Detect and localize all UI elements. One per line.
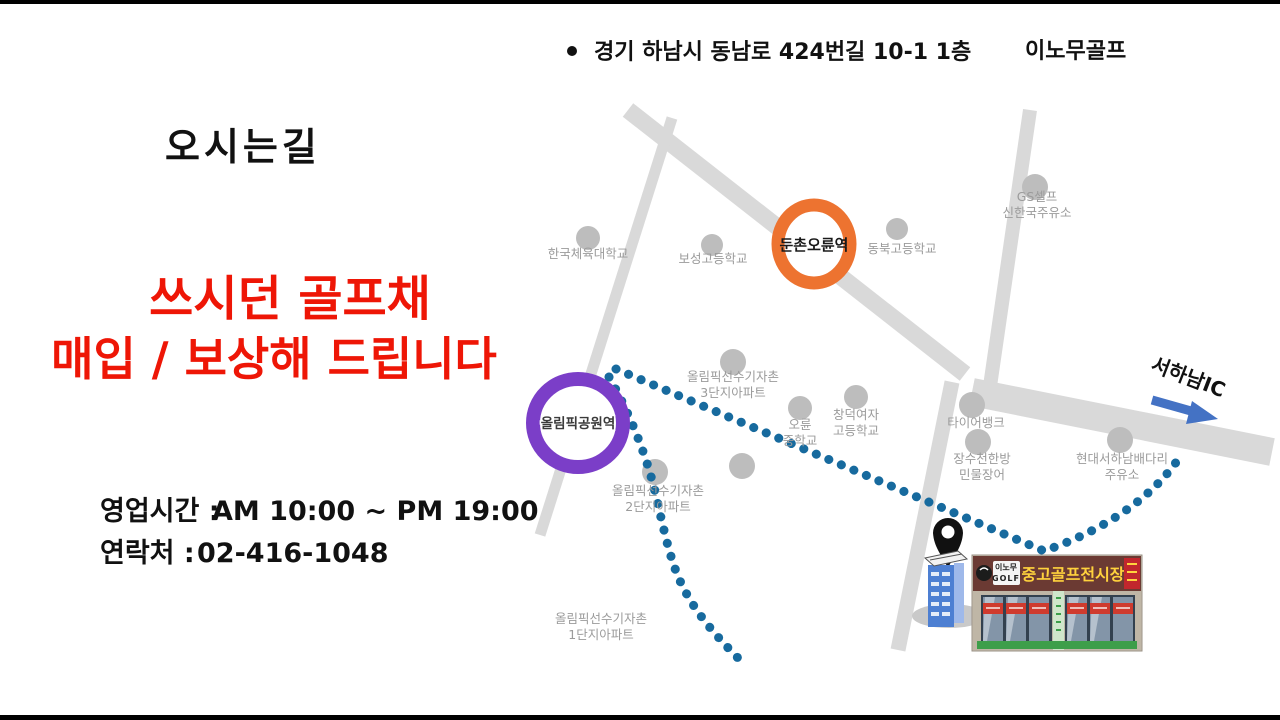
- map-label-apt3: 올림픽선수기자촌 3단지아파트: [687, 369, 779, 400]
- address-line: 경기 하남시 동남로 424번길 10-1 1층 이노무골프: [567, 39, 1126, 65]
- promo-line1: 쓰시던 골프채: [149, 271, 431, 327]
- map-label-changdeok-line1: 창덕여자: [833, 407, 880, 422]
- store-windows: [977, 591, 1137, 650]
- business-info: 영업시간 : AM 10:00 ~ PM 19:00 연락처 : 02-416-…: [100, 496, 539, 569]
- map-label-hyundai-gas: 현대서하남배다리 주유소: [1076, 451, 1168, 482]
- hours-label: 영업시간 :: [100, 496, 220, 527]
- hours-value: AM 10:00 ~ PM 19:00: [212, 496, 539, 527]
- map-label-hyundai-line1: 현대서하남배다리: [1076, 451, 1168, 466]
- map-label-gs-line1: GS셀프: [1017, 189, 1058, 204]
- poi-dot: [886, 218, 908, 240]
- map-pin-hole: [942, 526, 955, 539]
- map-label-apt3-line1: 올림픽선수기자촌: [687, 369, 779, 384]
- map-label-apt2-line1: 올림픽선수기자촌: [612, 483, 704, 498]
- station-label-dunchon-oryun: 둔촌오륜역: [779, 236, 848, 254]
- map-label-apt2-line2: 2단지아파트: [625, 499, 690, 514]
- map-label-apt1-line2: 1단지아파트: [568, 627, 633, 642]
- station-dunchon-oryun: 둔촌오륜역: [778, 205, 850, 283]
- seohanam-ic-label: 서하남IC: [1148, 352, 1229, 402]
- map-label-oryun-middle: 오륜 중학교: [783, 417, 818, 448]
- map-label-univ: 한국체육대학교: [548, 246, 629, 261]
- map-label-hyundai-line2: 주유소: [1105, 467, 1140, 482]
- road-right-upper: [988, 110, 1030, 400]
- map-label-apt1: 올림픽선수기자촌 1단지아파트: [555, 611, 647, 642]
- map-label-dongbuk: 동북고등학교: [867, 241, 936, 256]
- storefront-photo: 이노무 GOLF 중고골프전시장: [972, 555, 1142, 651]
- poi-dot: [1107, 427, 1133, 453]
- map-label-oryun-line1: 오륜: [788, 417, 811, 432]
- address-brand: 이노무골프: [1025, 39, 1126, 64]
- map-label-apt2: 올림픽선수기자촌 2단지아파트: [612, 483, 704, 514]
- promo-line2: 매입 / 보상해 드립니다: [51, 332, 497, 386]
- promo-text: 쓰시던 골프채 매입 / 보상해 드립니다: [51, 271, 497, 386]
- map-label-boseong: 보성고등학교: [678, 251, 747, 266]
- map-label-changdeok: 창덕여자 고등학교: [833, 407, 880, 438]
- map-label-apt1-line1: 올림픽선수기자촌: [555, 611, 647, 626]
- slide-border-top: [0, 0, 1280, 4]
- map-label-oryun-line2: 중학교: [783, 433, 818, 448]
- map-label-changdeok-line2: 고등학교: [833, 423, 879, 438]
- address-bullet: [567, 46, 577, 56]
- map-label-eel-line2: 민물장어: [959, 467, 1005, 482]
- store-sign-text: 중고골프전시장: [1021, 565, 1124, 584]
- map-label-apt3-line2: 3단지아파트: [700, 385, 765, 400]
- directions-slide: 둔촌오륜역 올림픽공원역 한국체육대학교 보성고등학교 동북고등학교 GS셀프 …: [0, 0, 1280, 720]
- map-roads: [540, 110, 1272, 650]
- map-label-eel: 장수천한방 민물장어: [953, 451, 1011, 482]
- poi-dots: [576, 174, 1133, 485]
- map-label-gs-line2: 신한국주유소: [1002, 205, 1071, 220]
- store-logo-line1: 이노무: [995, 562, 1018, 572]
- page-title: 오시는길: [165, 125, 321, 169]
- map-label-tirebank: 타이어뱅크: [947, 415, 1005, 430]
- contact-value: 02-416-1048: [197, 538, 389, 569]
- station-label-olympic-park: 올림픽공원역: [541, 415, 616, 432]
- poi-dot: [729, 453, 755, 479]
- address-text: 경기 하남시 동남로 424번길 10-1 1층: [594, 40, 971, 65]
- contact-label: 연락처 :: [100, 538, 195, 569]
- store-logo-line2: GOLF: [992, 574, 1020, 583]
- seohanam-ic: 서하남IC: [1148, 352, 1229, 424]
- poi-dot: [844, 385, 868, 409]
- map-label-eel-line1: 장수천한방: [953, 451, 1011, 466]
- station-olympic-park: 올림픽공원역: [533, 379, 623, 467]
- slide-border-bottom: [0, 715, 1280, 720]
